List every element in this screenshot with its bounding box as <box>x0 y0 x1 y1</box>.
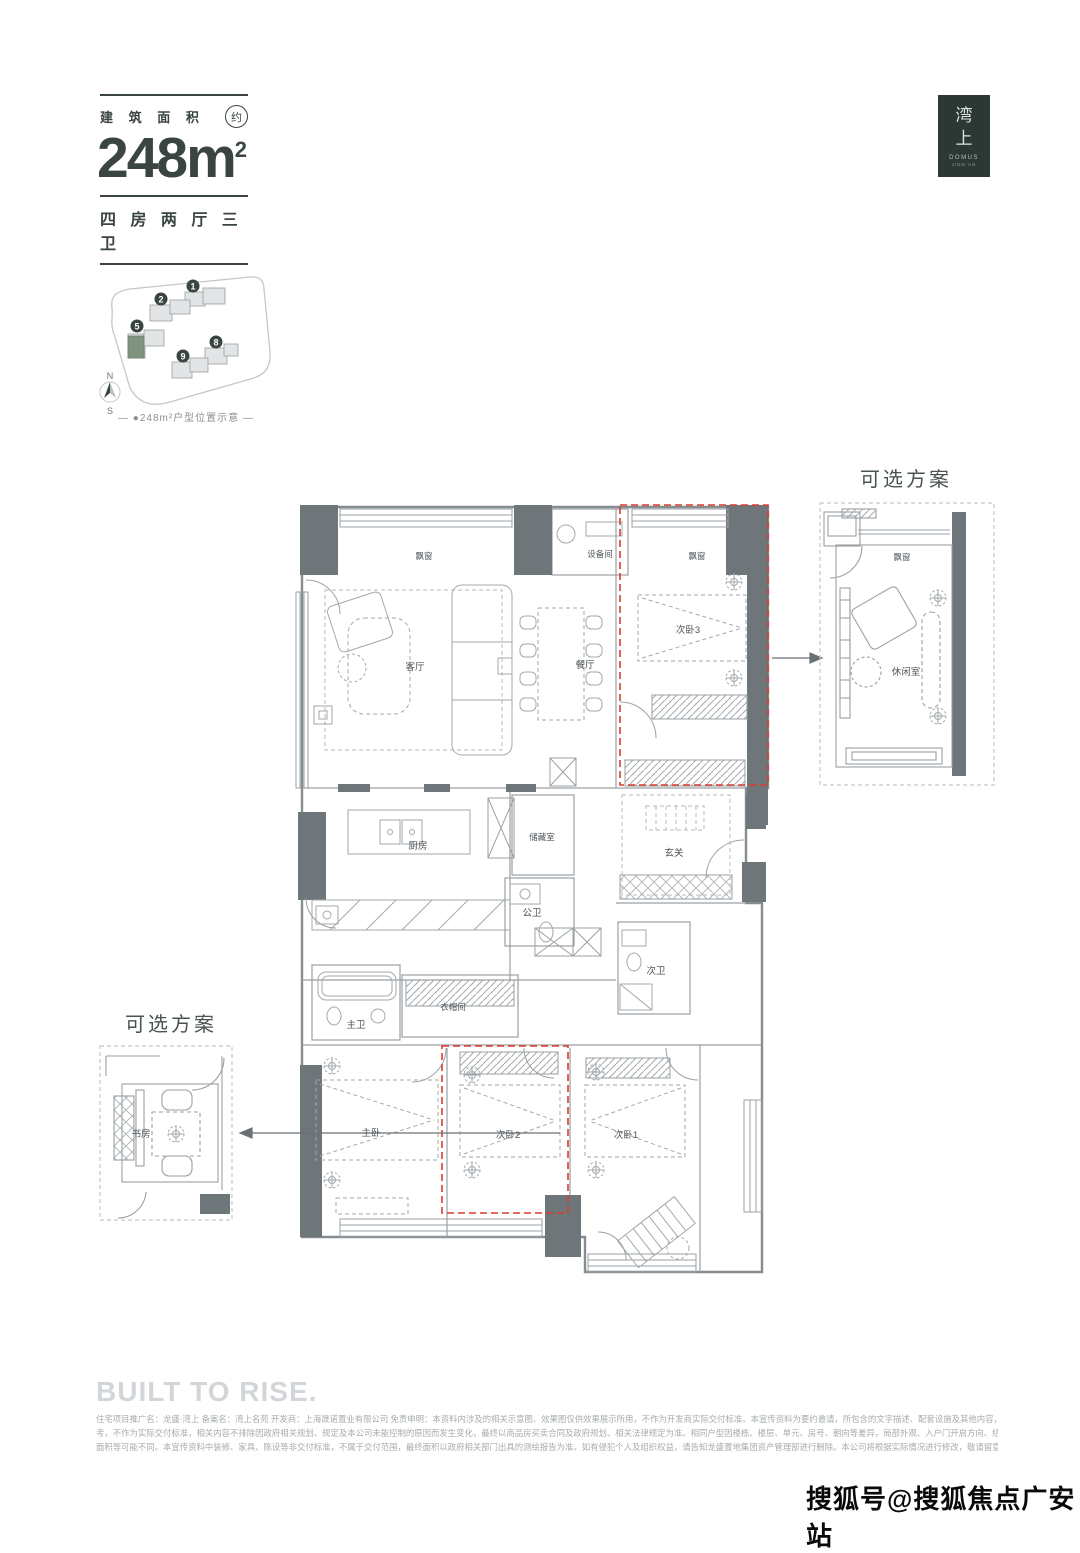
room-label-bedroom3: 次卧3 <box>676 624 700 636</box>
disclaimer: 住宅项目推广名：龙盛·湾上 备案名：湾上名苑 开发商：上海晟诺置业有限公司 免责… <box>96 1412 998 1454</box>
site-plan-caption: — ●248m²户型位置示意 — <box>118 411 254 424</box>
site-buildings <box>128 288 238 378</box>
disclaimer-line: 住宅项目推广名：龙盛·湾上 备案名：湾上名苑 开发商：上海晟诺置业有限公司 免责… <box>96 1412 998 1426</box>
room-label-equipment: 设备间 <box>587 549 613 559</box>
badge-9: 9 <box>180 352 185 362</box>
room-label-leisure: 休闲室 <box>892 666 921 678</box>
room-label-bedroom2: 次卧2 <box>496 1129 520 1141</box>
room-label-living: 客厅 <box>405 661 425 673</box>
room-label-study: 书房 <box>131 1128 150 1140</box>
optional-plan-left: 可选方案 书房 <box>100 1013 232 1220</box>
room-label-bay-window-left: 飘窗 <box>415 551 432 561</box>
room-label-foyer: 玄关 <box>664 847 684 859</box>
room-label-dining: 餐厅 <box>575 659 595 671</box>
room-label-guest-bath: 公卫 <box>522 908 542 919</box>
badge-5: 5 <box>134 322 139 332</box>
room-label-sec-bath: 次卫 <box>646 965 666 977</box>
slogan: BUILT TO RISE. <box>96 1376 317 1408</box>
room-label-bay-window-right: 飘窗 <box>688 551 705 561</box>
room-label-master-bed: 主卧 <box>361 1127 381 1139</box>
watermark: 搜狐号@搜狐焦点广安站 <box>806 1479 1080 1553</box>
optional-plan-right: 可选方案 飘窗 休闲室 <box>820 468 994 785</box>
optional-plan-right-title: 可选方案 <box>860 468 952 491</box>
disclaimer-line: 考，不作为实际交付标准，相关内容不排除因政府相关规划、规定及本公司未能控制的原因… <box>96 1426 998 1440</box>
site-plan: 1 2 5 8 9 N S — ●248m²户型位置示意 — <box>100 277 270 424</box>
highlighted-unit <box>128 336 144 358</box>
compass: N S <box>100 371 120 416</box>
room-label-bay-window-option: 飘窗 <box>893 552 910 562</box>
badge-8: 8 <box>213 338 218 348</box>
badge-1: 1 <box>190 282 195 292</box>
room-label-bedroom1: 次卧1 <box>614 1129 638 1141</box>
room-label-master-bath: 主卫 <box>346 1019 366 1031</box>
optional-plan-left-title: 可选方案 <box>125 1013 217 1036</box>
disclaimer-line: 面积等可能不同。本宣传资料中装修、家具、陈设等非交付标准，不属于交付范围，最终面… <box>96 1440 998 1454</box>
room-label-kitchen: 厨房 <box>408 840 427 852</box>
room-label-storage: 储藏室 <box>529 832 555 842</box>
page: { "header": { "area_label": "建 筑 面 积", "… <box>0 0 1080 1526</box>
compass-north: N <box>107 371 114 381</box>
floor-plan-canvas: 1 2 5 8 9 N S — ●248m²户型位置示意 — <box>0 0 1080 1526</box>
room-label-closet: 衣帽间 <box>440 1002 466 1012</box>
main-floor-plan: 飘窗 飘窗 设备间 客厅 餐厅 次卧3 厨房 储藏室 公卫 玄关 次卫 主卫 衣… <box>240 505 822 1272</box>
compass-south: S <box>107 406 113 416</box>
badge-2: 2 <box>158 295 163 305</box>
